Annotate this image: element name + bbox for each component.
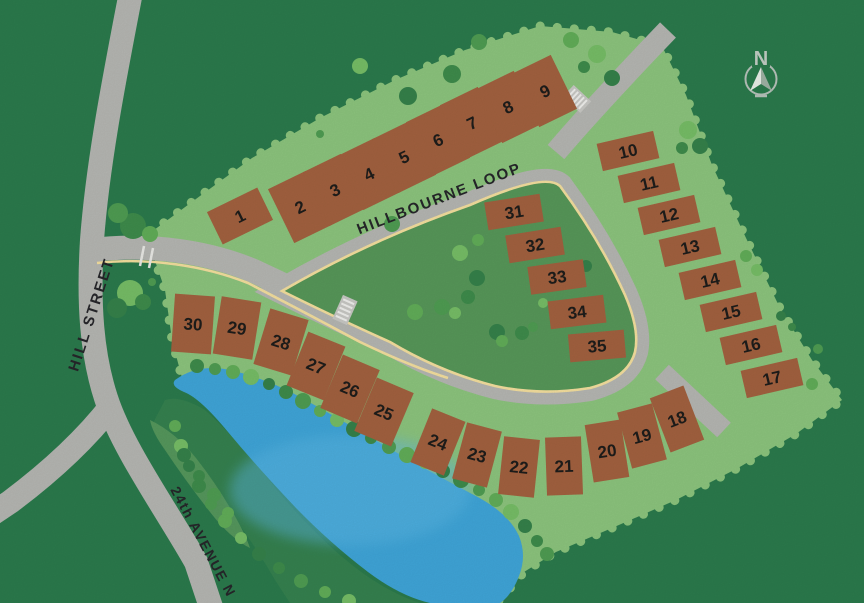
site-plan: 1234567891011121314151617181920212223242… <box>0 0 864 603</box>
grain-overlay <box>0 0 864 603</box>
site-plan-map: 1234567891011121314151617181920212223242… <box>0 0 864 603</box>
